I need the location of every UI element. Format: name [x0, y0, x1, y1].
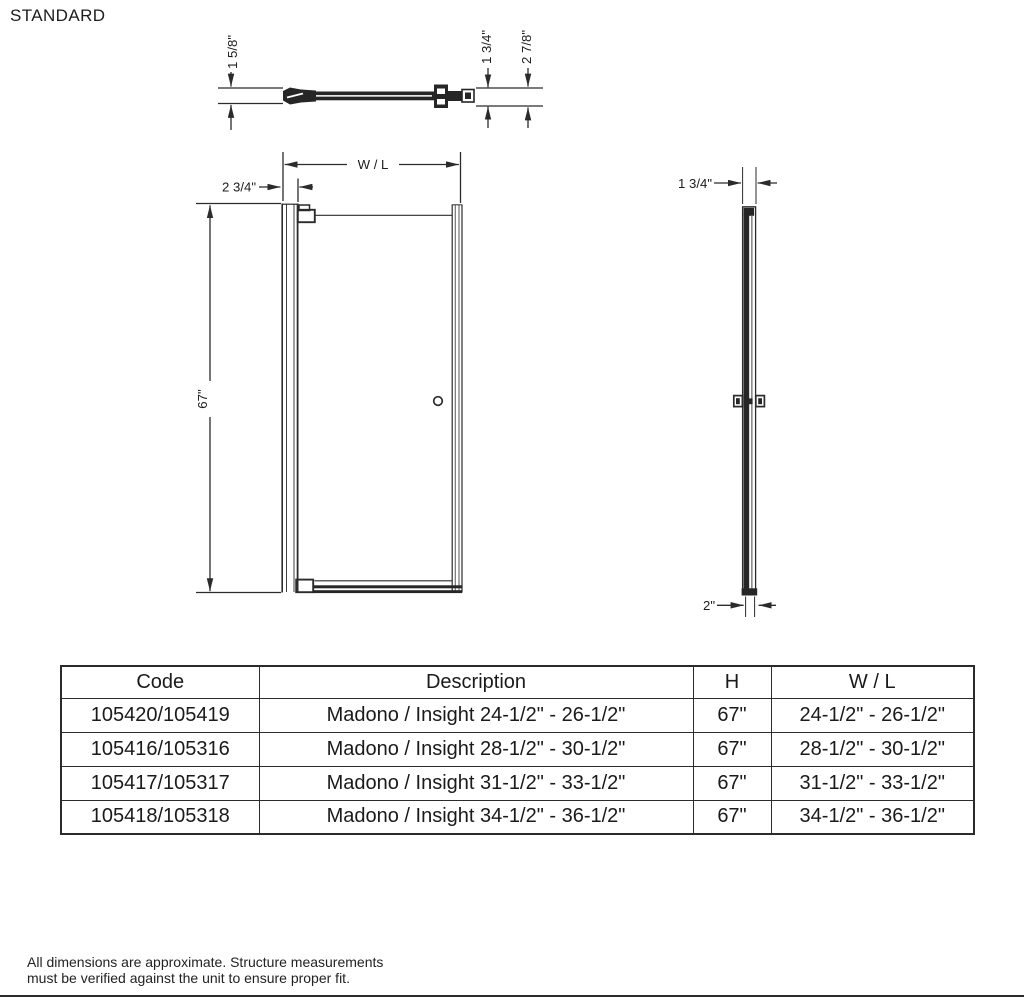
table-row: 105420/105419 Madono / Insight 24-1/2" -…: [61, 698, 974, 732]
col-header-wl: W / L: [771, 666, 974, 698]
side-bottom-foot: [742, 588, 758, 595]
spec-table: Code Description H W / L 105420/105419 M…: [60, 665, 975, 835]
table-header-row: Code Description H W / L: [61, 666, 974, 698]
dim-label-height: 67": [195, 389, 210, 409]
col-header-code: Code: [61, 666, 259, 698]
dim-wall-profile-height: 1 5/8": [218, 35, 283, 130]
cell-code: 105416/105316: [61, 732, 259, 766]
front-view: W / L 2 3/4" 67": [195, 152, 462, 593]
dim-label-side-top-width: 1 3/4": [678, 176, 712, 191]
door-knob: [434, 397, 443, 406]
cell-wl: 24-1/2" - 26-1/2": [771, 698, 974, 732]
drawing-page: STANDARD 1 5/8": [0, 0, 1024, 1007]
cell-code: 105417/105317: [61, 766, 259, 800]
cell-wl: 34-1/2" - 36-1/2": [771, 800, 974, 834]
cell-description: Madono / Insight 24-1/2" - 26-1/2": [259, 698, 693, 732]
dim-label-side-bottom-width: 2": [703, 598, 715, 613]
footnote-line-1: All dimensions are approximate. Structur…: [27, 955, 383, 971]
cell-h: 67": [693, 766, 771, 800]
dim-width: W / L: [283, 152, 461, 203]
dim-hinge-side-offset: 2 3/4": [222, 179, 313, 203]
bottom-sweep: [313, 585, 462, 593]
door-left-frame: [282, 204, 298, 593]
dim-label-total-depth: 2 7/8": [519, 30, 534, 64]
top-profile: [283, 85, 474, 109]
hinge-jaw: [283, 88, 316, 105]
dim-label-hinge-side-offset: 2 3/4": [222, 180, 256, 195]
bottom-divider: [0, 995, 1024, 997]
cell-h: 67": [693, 800, 771, 834]
dim-total-depth: 2 7/8": [519, 30, 534, 128]
hinge-top: [298, 205, 315, 222]
dim-side-top-width: 1 3/4": [678, 167, 777, 204]
dim-height: 67": [195, 204, 281, 593]
col-header-h: H: [693, 666, 771, 698]
cell-h: 67": [693, 732, 771, 766]
footnote-line-2: must be verified against the unit to ens…: [27, 971, 383, 987]
side-frame-band: [744, 215, 750, 589]
cell-description: Madono / Insight 28-1/2" - 30-1/2": [259, 732, 693, 766]
side-profile: [734, 207, 765, 596]
technical-drawing: 1 5/8": [0, 0, 1024, 650]
dim-label-wall-profile-height: 1 5/8": [225, 35, 240, 69]
side-view: 1 3/4": [678, 167, 777, 617]
table-row: 105418/105318 Madono / Insight 34-1/2" -…: [61, 800, 974, 834]
cell-code: 105420/105419: [61, 698, 259, 732]
side-top-cap: [744, 208, 755, 216]
cell-wl: 28-1/2" - 30-1/2": [771, 732, 974, 766]
hinge-bottom: [296, 580, 313, 593]
dim-side-bottom-width: 2": [703, 597, 776, 618]
cell-code: 105418/105318: [61, 800, 259, 834]
footnote: All dimensions are approximate. Structur…: [27, 955, 383, 986]
col-header-description: Description: [259, 666, 693, 698]
door-front: [282, 204, 462, 594]
table-row: 105416/105316 Madono / Insight 28-1/2" -…: [61, 732, 974, 766]
door-right-stile: [452, 205, 462, 593]
dim-label-width: W / L: [358, 157, 389, 172]
cell-description: Madono / Insight 34-1/2" - 36-1/2": [259, 800, 693, 834]
cell-description: Madono / Insight 31-1/2" - 33-1/2": [259, 766, 693, 800]
table-row: 105417/105317 Madono / Insight 31-1/2" -…: [61, 766, 974, 800]
dim-label-glass-assembly-depth: 1 3/4": [479, 30, 494, 64]
cell-h: 67": [693, 698, 771, 732]
cell-wl: 31-1/2" - 33-1/2": [771, 766, 974, 800]
handle-arm: [448, 91, 462, 101]
top-view: 1 5/8": [218, 30, 543, 130]
